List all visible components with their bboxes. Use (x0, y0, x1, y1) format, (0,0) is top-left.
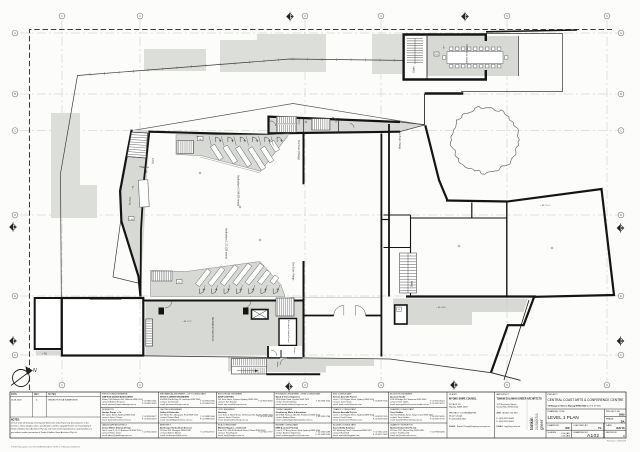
svg-text:MECHANICAL ENGINEER + LIFT CON: MECHANICAL ENGINEER + LIFT CONSULTANT (160, 393, 207, 396)
svg-text:TONKIN ZULAIKHA GREER ARCHITEC: TONKIN ZULAIKHA GREER ARCHITECTS (497, 398, 543, 401)
svg-text:TG: TG (598, 427, 601, 430)
svg-text:Stairs: Stairs (298, 119, 301, 125)
svg-text:Unit 54, Windella Street, King: Unit 54, Windella Street, Kings Cross NS… (390, 414, 434, 417)
svg-text:Level 7, 26 Pelgrim Street, Sy: Level 7, 26 Pelgrim Street, Sydney NSW 2… (333, 398, 375, 401)
svg-text:email: peter.griffiths@acousti: email: peter.griffiths@acousticstudio.co… (390, 403, 429, 406)
svg-text:email: earthscape@btol.net.au: email: earthscape@btol.net.au (160, 434, 187, 437)
svg-text:GEOTECH ENGINEER: GEOTECH ENGINEER (160, 409, 182, 411)
svg-text:HAZMAT CONSULTANT: HAZMAT CONSULTANT (276, 424, 299, 427)
svg-text:+ RL 20.8: + RL 20.8 (436, 307, 446, 309)
svg-text:Box Boom Plunge: Box Boom Plunge (292, 262, 294, 281)
svg-text:Room: Room (293, 348, 295, 354)
svg-text:ARCHITECT: ARCHITECT (497, 393, 510, 396)
svg-text:Mechanical Plant Room: Mechanical Plant Room (211, 317, 214, 341)
svg-text:854-860 Pacific Hwy, St Leonar: 854-860 Pacific Hwy, St Leonards NSW 206… (160, 398, 201, 401)
svg-text:3: 3 (304, 14, 306, 18)
svg-text:+ RL 17.2: + RL 17.2 (182, 321, 192, 323)
svg-text:117 Reservoir Street: 117 Reservoir Street (497, 403, 517, 406)
svg-text:email: jason.veale@kinesis.com: email: jason.veale@kinesis.com (333, 404, 362, 406)
svg-text:F: 02 9810 5312: F: 02 9810 5312 (142, 403, 157, 405)
svg-text:ABN: 48 002 722 349: ABN: 48 002 722 349 (497, 411, 519, 414)
svg-text:CLIENT: CLIENT (449, 394, 457, 396)
svg-text:Stairs: Stairs (276, 362, 279, 368)
svg-text:F: 02 9464 7001: F: 02 9464 7001 (200, 403, 215, 405)
svg-text:THEATRE CONSULTANT: THEATRE CONSULTANT (390, 408, 415, 411)
svg-text:P: (02) 8215 4600: P: (02) 8215 4600 (497, 418, 515, 420)
svg-text:1: 1 (61, 383, 63, 387)
svg-text:1: 1 (61, 14, 63, 18)
svg-text:CENTRAL COAST ARTS & CONFERENC: CENTRAL COAST ARTS & CONFERENCE CENTRE (548, 398, 625, 402)
svg-text:email: tim@northcroft.com.au: email: tim@northcroft.com.au (390, 434, 416, 437)
svg-text:NOTES: NOTES (48, 394, 56, 396)
svg-text:ARBORIST: ARBORIST (160, 424, 171, 427)
svg-text:Studio 1509 Bulwara Rd., Balma: Studio 1509 Bulwara Rd., Balmain NSW 204… (102, 398, 144, 401)
svg-text:REVISION: REVISION (606, 432, 617, 434)
svg-text:email: andrew@glendinningminto: email: andrew@glendinningminto.com.au (276, 419, 313, 422)
svg-text:F: 02 9888 7422: F: 02 9888 7422 (200, 419, 215, 421)
svg-text:A: A (620, 31, 622, 35)
svg-text:Auditorium 1 2C (29 seats): Auditorium 1 2C (29 seats) (225, 228, 229, 259)
svg-text:5: 5 (506, 383, 508, 387)
svg-text:DA: DA (621, 419, 625, 423)
svg-text:Ste 2/308 Foveaux Villa Rd, Pe: Ste 2/308 Foveaux Villa Rd, Peakhurst NS… (276, 414, 321, 417)
svg-text:F: (02) 8215 4601: F: (02) 8215 4601 (497, 421, 515, 423)
svg-text:EMAIL: tzg@tzg.com.au: EMAIL: tzg@tzg.com.au (497, 425, 521, 428)
svg-text:QUANTITY SURVEYOR: QUANTITY SURVEYOR (390, 424, 413, 427)
svg-text:email: admin@jmddesign.com.au: email: admin@jmddesign.com.au (102, 435, 132, 437)
svg-text:Electrical Switch Room: Electrical Switch Room (287, 320, 290, 343)
svg-text:F: F (620, 353, 622, 357)
svg-text:Surry Hills, NSW 2010: Surry Hills, NSW 2010 (497, 406, 520, 409)
svg-text:F: 02 9283 7585: F: 02 9283 7585 (373, 419, 388, 421)
svg-text:STRUCTURAL ENGINEER: STRUCTURAL ENGINEER (102, 393, 128, 396)
svg-text:ELECTRICAL ENGINEER: ELECTRICAL ENGINEER (218, 393, 243, 396)
svg-text:Conference Room: Conference Room (465, 44, 468, 63)
svg-text:James Mather Delaney Design: James Mather Delaney Design (102, 426, 132, 429)
svg-text:+ RL: + RL (42, 353, 48, 356)
svg-text:Wyong, NSW 2259: Wyong, NSW 2259 (449, 407, 468, 409)
svg-text:architect. These designs, plan: architect. These designs, plans, specifi… (11, 425, 92, 428)
svg-text:F: 02 9357 4755: F: 02 9357 4755 (430, 419, 445, 421)
svg-text:1:100 (A1): 1:100 (A1) (561, 432, 571, 435)
svg-text:Auditorium 2 3M (91 seats): Auditorium 2 3M (91 seats) (237, 175, 241, 206)
svg-text:Level 5, 79 Berry Street, Nort: Level 5, 79 Berry Street, North Sydney N… (276, 429, 321, 432)
svg-text:T: 02 9241 4188: T: 02 9241 4188 (258, 416, 273, 418)
svg-text:2/14-16 Bridge Rd, Stanmore NS: 2/14-16 Bridge Rd, Stanmore NSW 2048 (390, 398, 427, 401)
svg-text:Bio Box: Bio Box (129, 196, 132, 205)
svg-text:RW: RW (566, 427, 571, 430)
svg-text:SURVEYOR: SURVEYOR (102, 409, 114, 411)
svg-text:AUG'18: AUG'18 (616, 427, 625, 430)
svg-text:P:\1809 Wyong Arts Centre\03 D: P:\1809 Wyong Arts Centre\03 DRAWINGS\A1… (11, 446, 80, 449)
svg-text:HYDRAULIC ENGINEER + FIRE CONS: HYDRAULIC ENGINEER + FIRE CONSULTANT (276, 393, 322, 396)
svg-text:EMAIL: Stuart.Clough@wyong.nsw: EMAIL: Stuart.Clough@wyong.nsw.gov.au (449, 425, 491, 428)
svg-text:C: C (620, 129, 622, 133)
svg-text:Box Boom Plunge: Box Boom Plunge (398, 131, 400, 150)
svg-text:T: 02 9464 7000: T: 02 9464 7000 (316, 401, 331, 403)
svg-text:A102: A102 (587, 433, 599, 439)
svg-text:ESD CONSULTANT: ESD CONSULTANT (333, 393, 352, 396)
svg-text:PO BOX 20: PO BOX 20 (449, 404, 461, 406)
svg-text:F: F (14, 353, 16, 357)
svg-text:Accessibility Solutions: Accessibility Solutions (333, 426, 356, 429)
svg-text:BCA CONSULTANT: BCA CONSULTANT (218, 424, 237, 427)
svg-text:TRAFFIC CONSULTANT: TRAFFIC CONSULTANT (333, 408, 357, 411)
svg-text:E: E (14, 294, 16, 298)
svg-text:D: D (620, 213, 622, 217)
svg-text:F: 02 9475 7645: F: 02 9475 7645 (373, 434, 388, 436)
svg-text:6: 6 (606, 383, 608, 387)
svg-text:Stairs: Stairs (152, 157, 155, 164)
svg-text:part without written permissio: part without written permission of Tonki… (11, 431, 77, 434)
svg-text:Stairs: Stairs (411, 280, 414, 287)
svg-text:10 Margaret Street, Wyong NSW: 10 Margaret Street, Wyong NSW 2259 (LOT … (548, 405, 601, 408)
svg-text:D: D (14, 213, 16, 217)
svg-text:F: 02 9432 5594: F: 02 9432 5594 (316, 434, 331, 436)
svg-text:PO Box 286, Westgate NSW 2048: PO Box 286, Westgate NSW 2048 (160, 429, 191, 432)
svg-text:greer: greer (539, 419, 544, 430)
svg-text:email: andrew@simpsondesign.ne: email: andrew@simpsondesign.net.au (102, 403, 136, 406)
svg-text:A: A (14, 31, 16, 35)
svg-text:Blackett Maguire + Goldsmith: Blackett Maguire + Goldsmith (218, 426, 247, 429)
svg-text:N: N (33, 368, 37, 374)
svg-text:PROJECT COORDINATOR: PROJECT COORDINATOR (449, 411, 476, 414)
svg-text:E: E (620, 294, 622, 298)
svg-text:DRAWN BY: DRAWN BY (548, 424, 560, 427)
svg-text:201 Kent Street, Pyrmont Sydne: 201 Kent Street, Pyrmont Sydney NSW 2000 (218, 398, 259, 401)
svg-text:1:200 (A3): 1:200 (A3) (561, 435, 571, 438)
svg-text:email: tyoulden@bennelong.com.: email: tyoulden@bennelong.com.au (390, 419, 422, 422)
svg-text:PO Box 1247, Neutral Bay NSW 2: PO Box 1247, Neutral Bay NSW 2089 (390, 429, 425, 432)
svg-text:Jeffery & Katauskas: Jeffery & Katauskas (160, 411, 180, 414)
svg-text:4: 4 (380, 383, 382, 387)
svg-text:3: 3 (304, 383, 306, 387)
svg-text:SIMPSON DESIGN ASSOCIATES: SIMPSON DESIGN ASSOCIATES (102, 395, 133, 398)
svg-text:Stairs: Stairs (412, 66, 416, 73)
svg-text:Tonkin Zulaikha Greer Architec: Tonkin Zulaikha Greer Architects Pty Ltd… (11, 428, 92, 431)
svg-text:Box Boom (Plunge): Box Boom (Plunge) (297, 140, 299, 160)
svg-text:1809: 1809 (619, 413, 625, 417)
svg-text:Glendinning Minto & Associates: Glendinning Minto & Associates (276, 411, 307, 414)
svg-text:T: 02 9211 7777: T: 02 9211 7777 (258, 432, 273, 434)
svg-text:T: 02 9320 9320: T: 02 9320 9320 (258, 401, 273, 403)
svg-text:Kinesis Australia Pty Ltd: Kinesis Australia Pty Ltd (333, 411, 357, 414)
svg-text:WYONG SHIRE COUNCIL: WYONG SHIRE COUNCIL (449, 399, 477, 401)
svg-text:C: C (14, 129, 16, 133)
svg-text:DATE: DATE (11, 393, 17, 396)
svg-text:2: 2 (139, 383, 141, 387)
svg-text:F: 02 9557 6712: F: 02 9557 6712 (430, 403, 445, 405)
svg-text:4: 4 (36, 400, 38, 402)
svg-text:5: 5 (506, 14, 508, 18)
svg-text:T: 02 9908 3266: T: 02 9908 3266 (430, 432, 445, 434)
svg-text:4: 4 (380, 14, 382, 18)
svg-text:email: david.turner@kinesis.co: email: david.turner@kinesis.com (333, 419, 362, 422)
svg-text:Stuart Clough: Stuart Clough (449, 414, 463, 417)
svg-text:email: markrelf@bigpond.com: email: markrelf@bigpond.com (333, 435, 360, 437)
svg-text:ACCESS CONSULTANT: ACCESS CONSULTANT (333, 424, 357, 427)
svg-text:T: 02 8239 7500: T: 02 8239 7500 (373, 401, 388, 403)
svg-text:P: (02) 4350 5311: P: (02) 4350 5311 (449, 418, 467, 420)
svg-text:Northcroft Australia Pty Ltd: Northcroft Australia Pty Ltd (390, 426, 417, 429)
svg-text:CIVIL ENGINEER: CIVIL ENGINEER (218, 409, 235, 411)
svg-text:B: B (14, 92, 16, 96)
svg-text:Unit 1 Level 2, 11-13 Brisbane: Unit 1 Level 2, 11-13 Brisbane St NSW 20… (102, 429, 142, 432)
svg-text:REV: REV (34, 394, 39, 396)
svg-text:ARUP LIGHTING: ARUP LIGHTING (218, 395, 234, 398)
svg-text:email: dunthor@ozemail.com.au: email: dunthor@ozemail.com.au (102, 419, 131, 422)
svg-text:DATE: DATE (606, 424, 612, 427)
svg-text:Acoustic Studio: Acoustic Studio (390, 395, 406, 398)
svg-text:NOTES:: NOTES: (11, 420, 20, 422)
svg-text:TOWN PLANNER: TOWN PLANNER (276, 408, 293, 411)
svg-text:email: rward@jkgeotechnics.com: email: rward@jkgeotechnics.com.au (160, 419, 192, 422)
svg-text:6: 6 (606, 14, 608, 18)
svg-text:T: 02 9625 4766: T: 02 9625 4766 (316, 416, 331, 418)
svg-text:Northrop: Northrop (218, 411, 227, 414)
svg-text:email: daniel.stekhov@wge.com.: email: daniel.stekhov@wge.com.au (276, 403, 308, 406)
svg-text:23.08.2018: 23.08.2018 (11, 400, 22, 402)
svg-text:PHASE: PHASE (606, 418, 614, 421)
svg-text:Kinesis Australia Pty Ltd: Kinesis Australia Pty Ltd (333, 395, 357, 398)
svg-text:email: jcharlton@northrop.com.: email: jcharlton@northrop.com.au (218, 419, 248, 422)
svg-text:B: B (620, 92, 622, 96)
svg-text:LANDSCAPE ARCHITECT: LANDSCAPE ARCHITECT (102, 424, 128, 427)
svg-text:File Name: 23/08/2018: File Name: 23/08/2018 (607, 441, 626, 443)
svg-text:PROJECT: PROJECT (548, 394, 559, 396)
svg-text:ACOUSTIC ENGINEER: ACOUSTIC ENGINEER (390, 393, 413, 396)
svg-text:Earthscape Horticultural Servi: Earthscape Horticultural Services (160, 426, 193, 429)
svg-text:Level 7, 26 Pelgrim Street, Sy: Level 7, 26 Pelgrim Street, Sydney NSW 2… (333, 414, 375, 417)
svg-text:DRAWING TITLE: DRAWING TITLE (548, 410, 566, 413)
svg-text:EMM (Laurenta Pty Ltd): EMM (Laurenta Pty Ltd) (276, 426, 299, 429)
svg-text:DRAWING NO: DRAWING NO (574, 431, 589, 434)
svg-text:LEVEL 1 PLAN: LEVEL 1 PLAN (548, 415, 579, 420)
svg-text:SCALES: SCALES (548, 431, 557, 434)
svg-text:email: andrew.grigolencis@emm.: email: andrew.grigolencis@emm.com (276, 435, 310, 437)
svg-text:email: tom.russell@arup.com.au: email: tom.russell@arup.com.au (218, 403, 247, 406)
svg-text:email: tony@bmgbca.com.au: email: tony@bmgbca.com.au (218, 434, 244, 437)
svg-text:T: 02 9554 3757: T: 02 9554 3757 (200, 432, 215, 434)
svg-text:email: joe.beovich@wge.com.au: email: joe.beovich@wge.com.au (160, 404, 189, 406)
svg-text:Do not scale off drawings. Use: Do not scale off drawings. Use figured d… (11, 422, 90, 425)
svg-text:467 Lyons Street, Sydney NSW 2: 467 Lyons Street, Sydney NSW 2000 (102, 414, 136, 417)
svg-text:+ RL 21.4: + RL 21.4 (540, 205, 550, 207)
svg-text:T: 02 9554 2440: T: 02 9554 2440 (142, 432, 157, 434)
svg-text:CHECKED BY: CHECKED BY (574, 425, 589, 427)
svg-text:ISSUED FOR DA SUBMISSION: ISSUED FOR DA SUBMISSION (48, 399, 78, 402)
svg-text:2: 2 (139, 14, 141, 18)
svg-text:567 Mowbray Road, Chatswood NS: 567 Mowbray Road, Chatswood NSW 2057 (333, 429, 373, 432)
svg-text:F: 02 9264 5518: F: 02 9264 5518 (142, 419, 157, 421)
svg-text:4: 4 (623, 434, 625, 438)
